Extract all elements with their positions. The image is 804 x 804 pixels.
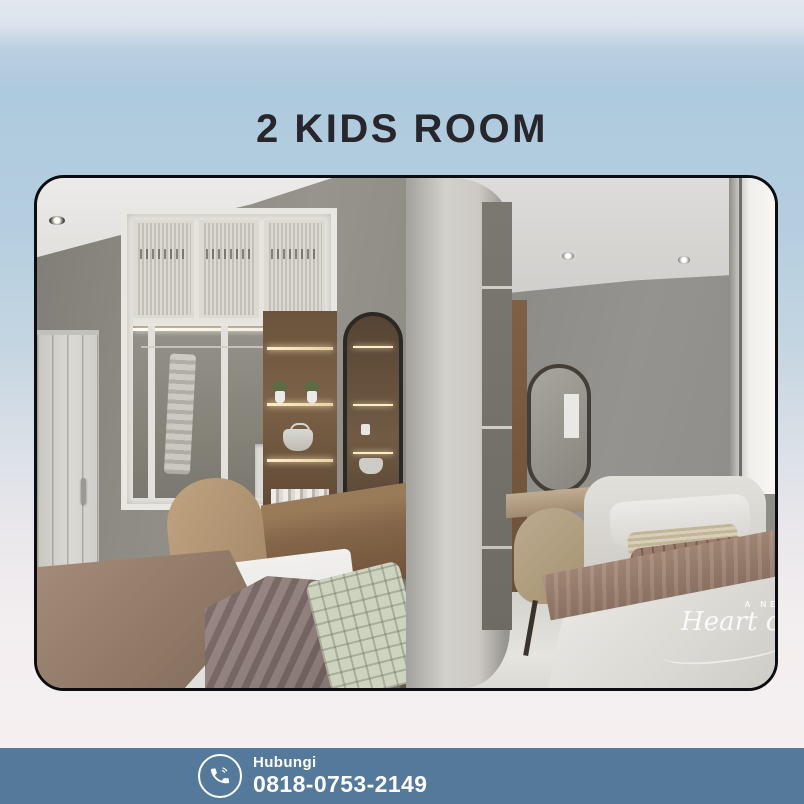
potted-plant [305,381,319,403]
ribbed-glass-cabinets [133,220,325,318]
kids-room-photo-right: A NEW Heart of [406,178,775,688]
door-handle [81,478,86,504]
recessed-light [562,252,574,260]
phone-call-icon [198,754,242,798]
contact-label: Hubungi [253,755,427,772]
recessed-light [49,216,65,225]
window [729,178,775,494]
brand-watermark: A NEW Heart of [661,600,775,662]
watermark-text-script: Heart of [661,609,775,636]
potted-plant [273,381,287,403]
wooden-shelf-niche [263,311,337,511]
phone-number: 0818-0753-2149 [253,772,427,797]
kids-room-photo-left [37,178,406,688]
glass-panel [482,202,512,630]
recessed-light [678,256,690,264]
oval-mirror [527,364,591,494]
flyer-page: 2 KIDS ROOM [0,0,804,804]
contact-phone[interactable]: Hubungi 0818-0753-2149 [198,754,427,798]
handbag [283,429,313,451]
page-title: 2 KIDS ROOM [0,107,804,152]
room-photo-card: A NEW Heart of [34,175,778,691]
hanging-clothes [164,353,196,474]
footer-bar: Hubungi 0818-0753-2149 PESAN SEKARANG [0,748,804,804]
